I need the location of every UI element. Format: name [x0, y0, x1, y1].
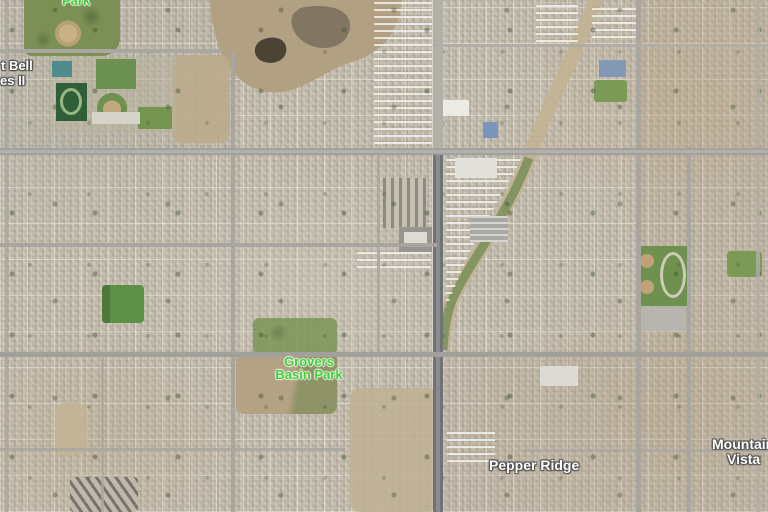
school-building-east — [640, 307, 686, 331]
commercial-building — [470, 216, 508, 242]
grovers-basin-park-green — [253, 318, 337, 354]
map-label-mountain-vista-line1: Mountain — [712, 437, 768, 451]
baseball-diamond — [640, 280, 654, 294]
road-horizontal-top-west — [0, 49, 222, 53]
green-field-midleft — [102, 285, 144, 323]
road-horizontal-mid — [0, 243, 437, 247]
courtyard-building — [399, 227, 432, 252]
warehouse — [540, 366, 578, 386]
running-track — [60, 88, 82, 115]
road-vertical-1 — [231, 52, 235, 512]
road-horizontal-lower — [0, 352, 768, 357]
map-label-bell-line2: es II — [0, 74, 25, 88]
industrial-rows — [447, 432, 495, 462]
map-label-park: Park — [62, 0, 90, 8]
green-field-northeast — [594, 80, 627, 102]
mobile-home-park — [536, 4, 578, 42]
blue-roof-building — [483, 122, 498, 138]
warehouse — [441, 100, 469, 116]
school-building — [92, 112, 140, 124]
main-road-south — [433, 150, 443, 512]
blue-roof-building — [599, 60, 626, 77]
vacant-lot-mid — [172, 55, 230, 143]
road-horizontal-bottom-west — [0, 448, 345, 451]
mobile-home-park — [357, 250, 431, 268]
map-label-grovers-basin-park-line2: Basin Park — [275, 368, 342, 382]
road-vertical-3 — [687, 146, 691, 512]
sports-field — [96, 59, 136, 89]
main-road-horizontal — [0, 148, 768, 155]
road-vertical-2 — [636, 0, 641, 512]
stadium-field — [56, 83, 87, 121]
school-campus — [50, 57, 176, 133]
street-vertical-minor — [377, 150, 380, 355]
park-east — [638, 246, 690, 306]
apartment-complex — [383, 178, 427, 228]
road-horizontal-top-east — [433, 44, 768, 47]
main-road-north — [433, 0, 443, 150]
map-label-mountain-vista-line2: Vista — [727, 452, 760, 466]
satellite-map[interactable]: Park t Bell es II Grovers Basin Park Pep… — [0, 0, 768, 512]
baseball-diamond — [640, 254, 654, 268]
map-label-bell-line1: t Bell — [1, 59, 33, 73]
street-vertical-minor — [101, 355, 104, 512]
tennis-courts — [52, 61, 72, 77]
baseball-diamond — [52, 16, 84, 48]
map-label-pepper-ridge: Pepper Ridge — [489, 458, 579, 472]
condo-complex — [70, 477, 138, 512]
mobile-home-park — [592, 4, 636, 38]
warehouse — [455, 158, 497, 178]
mobile-home-park — [374, 2, 432, 144]
running-track — [660, 252, 686, 298]
vacant-lot-south — [350, 388, 438, 512]
park-top-left — [24, 0, 120, 56]
sports-field — [138, 107, 172, 129]
